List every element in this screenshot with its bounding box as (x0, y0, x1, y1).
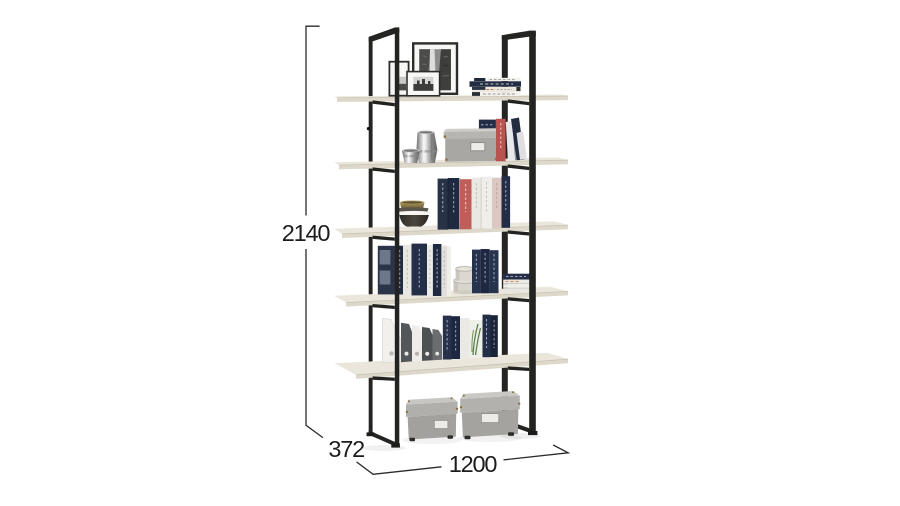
svg-text:372: 372 (328, 436, 364, 462)
svg-text:1200: 1200 (449, 451, 498, 477)
svg-text:2140: 2140 (282, 220, 331, 246)
